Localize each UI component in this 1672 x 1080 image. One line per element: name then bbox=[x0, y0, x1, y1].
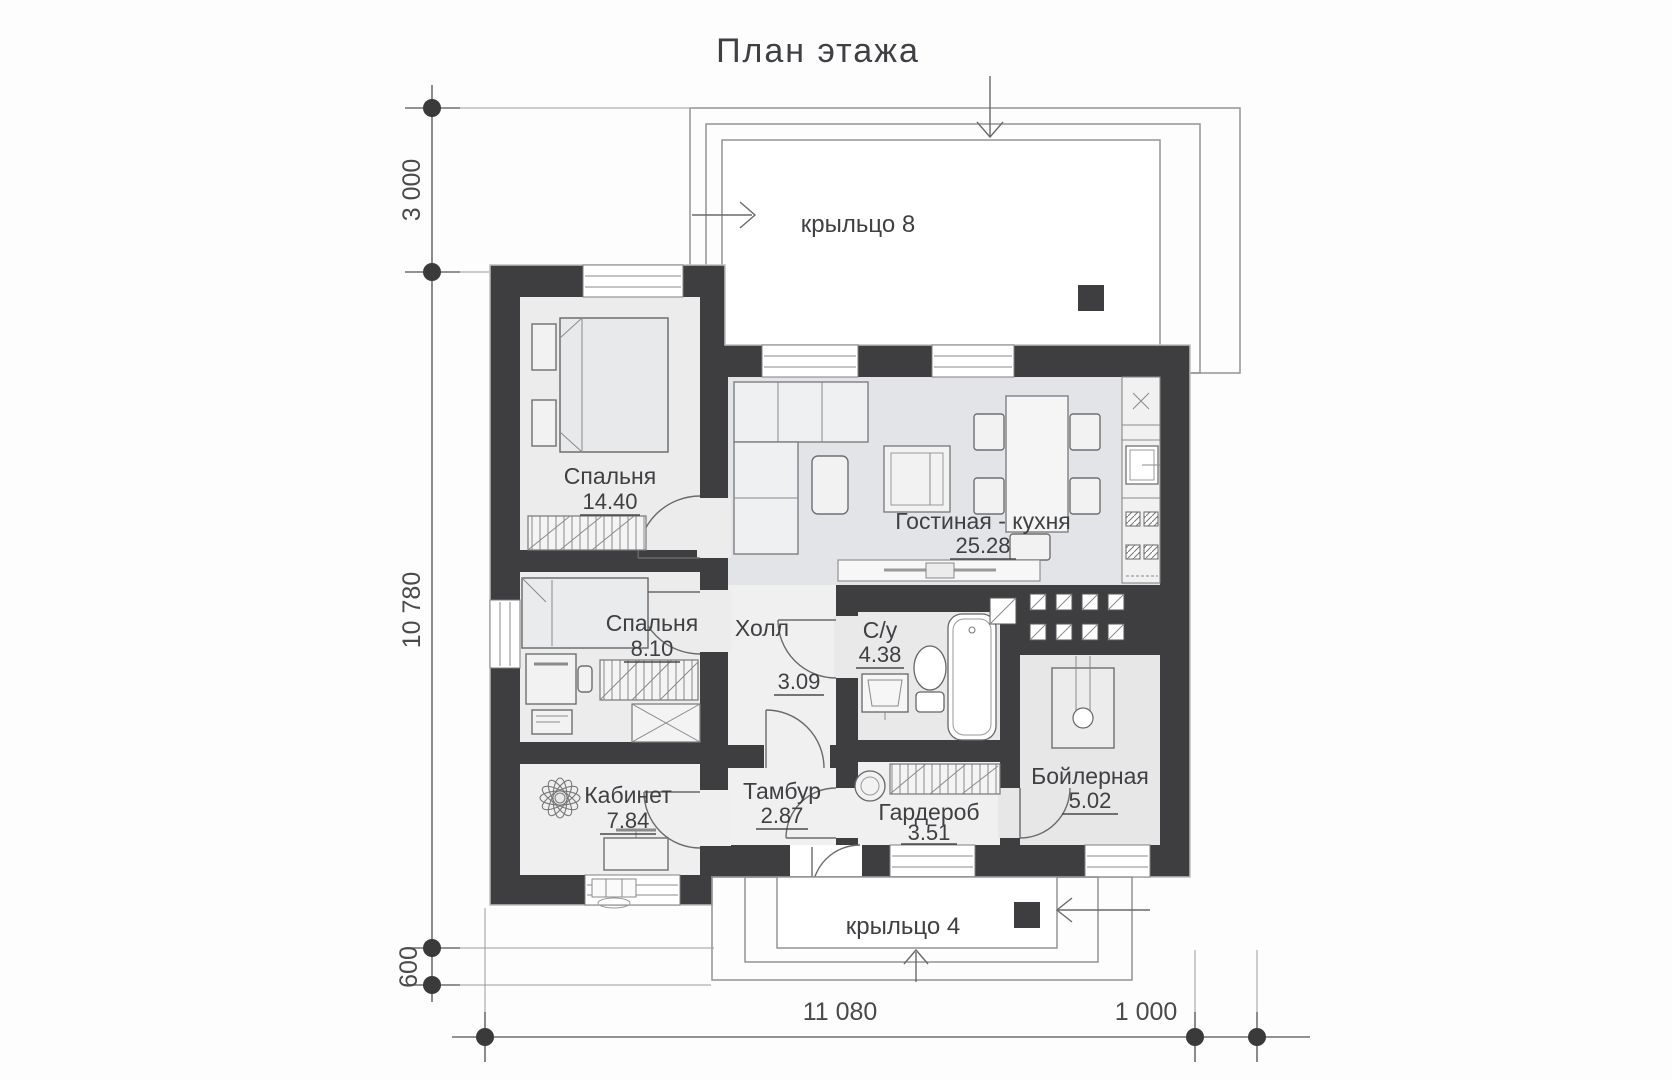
desk-icon bbox=[526, 654, 576, 704]
room-area: 4.38 bbox=[859, 642, 902, 667]
column-icon bbox=[1014, 902, 1040, 928]
window-icon bbox=[762, 345, 858, 377]
tv-console-icon bbox=[838, 560, 1040, 581]
room-area: 3.09 bbox=[778, 669, 821, 694]
chair-icon bbox=[974, 414, 1004, 450]
column-icon bbox=[1078, 285, 1104, 311]
dimension-node bbox=[476, 1028, 494, 1046]
dimension-node bbox=[1186, 1028, 1204, 1046]
room-label: Бойлерная bbox=[1031, 763, 1149, 789]
porch-top: крыльцо 8 bbox=[690, 76, 1240, 373]
window-icon bbox=[932, 345, 1014, 377]
entry-arrow-icon bbox=[977, 76, 1003, 137]
room-area: 25.28 bbox=[955, 533, 1010, 558]
office-chair-icon bbox=[578, 666, 592, 692]
coffee-table-icon bbox=[884, 446, 950, 512]
porch-top-floor bbox=[722, 140, 1160, 350]
room-area: 7.84 bbox=[607, 808, 650, 833]
room-label: С/у bbox=[863, 617, 898, 643]
wardrobe-hatch-icon bbox=[600, 660, 698, 700]
door-opening-entry bbox=[790, 845, 862, 877]
toilet-icon bbox=[914, 646, 946, 712]
page-title: План этажа bbox=[716, 32, 920, 70]
room-area: 5.02 bbox=[1069, 788, 1112, 813]
bathtub-icon bbox=[948, 614, 996, 740]
room-area: 14.40 bbox=[582, 489, 637, 514]
dimension-node bbox=[423, 263, 441, 281]
room-label: Холл bbox=[735, 615, 789, 641]
door-opening-bedroom2 bbox=[697, 590, 731, 652]
nightstand-icon bbox=[532, 400, 556, 446]
room-label: Тамбур bbox=[743, 778, 821, 804]
washing-machine-icon bbox=[855, 771, 885, 801]
window-icon bbox=[583, 265, 683, 297]
door-opening-office bbox=[697, 790, 731, 846]
crossed-storage-icon bbox=[632, 704, 700, 742]
entry-arrow-icon bbox=[1057, 898, 1150, 922]
porch-top-label: крыльцо 8 bbox=[801, 211, 915, 238]
room-hall-floor bbox=[728, 585, 836, 745]
nightstand-icon bbox=[532, 324, 556, 370]
chair-icon bbox=[1070, 414, 1100, 450]
entry-arrow-icon bbox=[904, 950, 928, 982]
dim-bottom-width: 11 080 bbox=[803, 998, 878, 1026]
room-area: 2.87 bbox=[761, 803, 804, 828]
dimension-node bbox=[423, 939, 441, 957]
door-opening-bedroom1 bbox=[697, 498, 731, 558]
window-icon bbox=[490, 600, 520, 668]
window-icon bbox=[1085, 845, 1150, 877]
side-table-icon bbox=[812, 456, 848, 514]
wardrobe-hatch-icon bbox=[890, 764, 1000, 794]
boiler-icon bbox=[1052, 656, 1114, 748]
chair-icon bbox=[1070, 478, 1100, 514]
dim-bottom-right: 1 000 bbox=[1115, 998, 1178, 1026]
kitchen-counter bbox=[1122, 377, 1160, 583]
porch-bottom-label: крыльцо 4 bbox=[846, 913, 960, 940]
dimension-node bbox=[423, 976, 441, 994]
floor-plan-page: План этажа крыльцо 8 bbox=[0, 0, 1672, 1080]
door-opening-boiler bbox=[998, 788, 1022, 838]
room-label: Спальня bbox=[564, 463, 656, 489]
desk-icon bbox=[604, 838, 668, 870]
room-label: Кабинет bbox=[584, 782, 672, 808]
porch-bottom: крыльцо 4 bbox=[712, 877, 1150, 982]
dim-left-top: 3 000 bbox=[398, 159, 426, 222]
window-icon bbox=[890, 845, 975, 877]
dimension-node bbox=[423, 99, 441, 117]
room-area: 3.51 bbox=[908, 820, 951, 845]
room-area: 8.10 bbox=[631, 636, 674, 661]
dimension-node bbox=[1248, 1028, 1266, 1046]
room-label: Спальня bbox=[606, 610, 698, 636]
room-label: Гостиная - кухня bbox=[895, 508, 1070, 534]
floor-plan-canvas: План этажа крыльцо 8 bbox=[0, 0, 1672, 1080]
wardrobe-hatch-icon bbox=[528, 516, 646, 550]
dim-left-middle: 10 780 bbox=[398, 572, 426, 648]
chair-icon bbox=[1010, 534, 1050, 560]
dim-left-bottom: 600 bbox=[395, 946, 423, 988]
door-opening-wardrobe bbox=[834, 788, 860, 838]
double-bed-icon bbox=[560, 318, 668, 452]
fridge-icon bbox=[1126, 446, 1160, 484]
